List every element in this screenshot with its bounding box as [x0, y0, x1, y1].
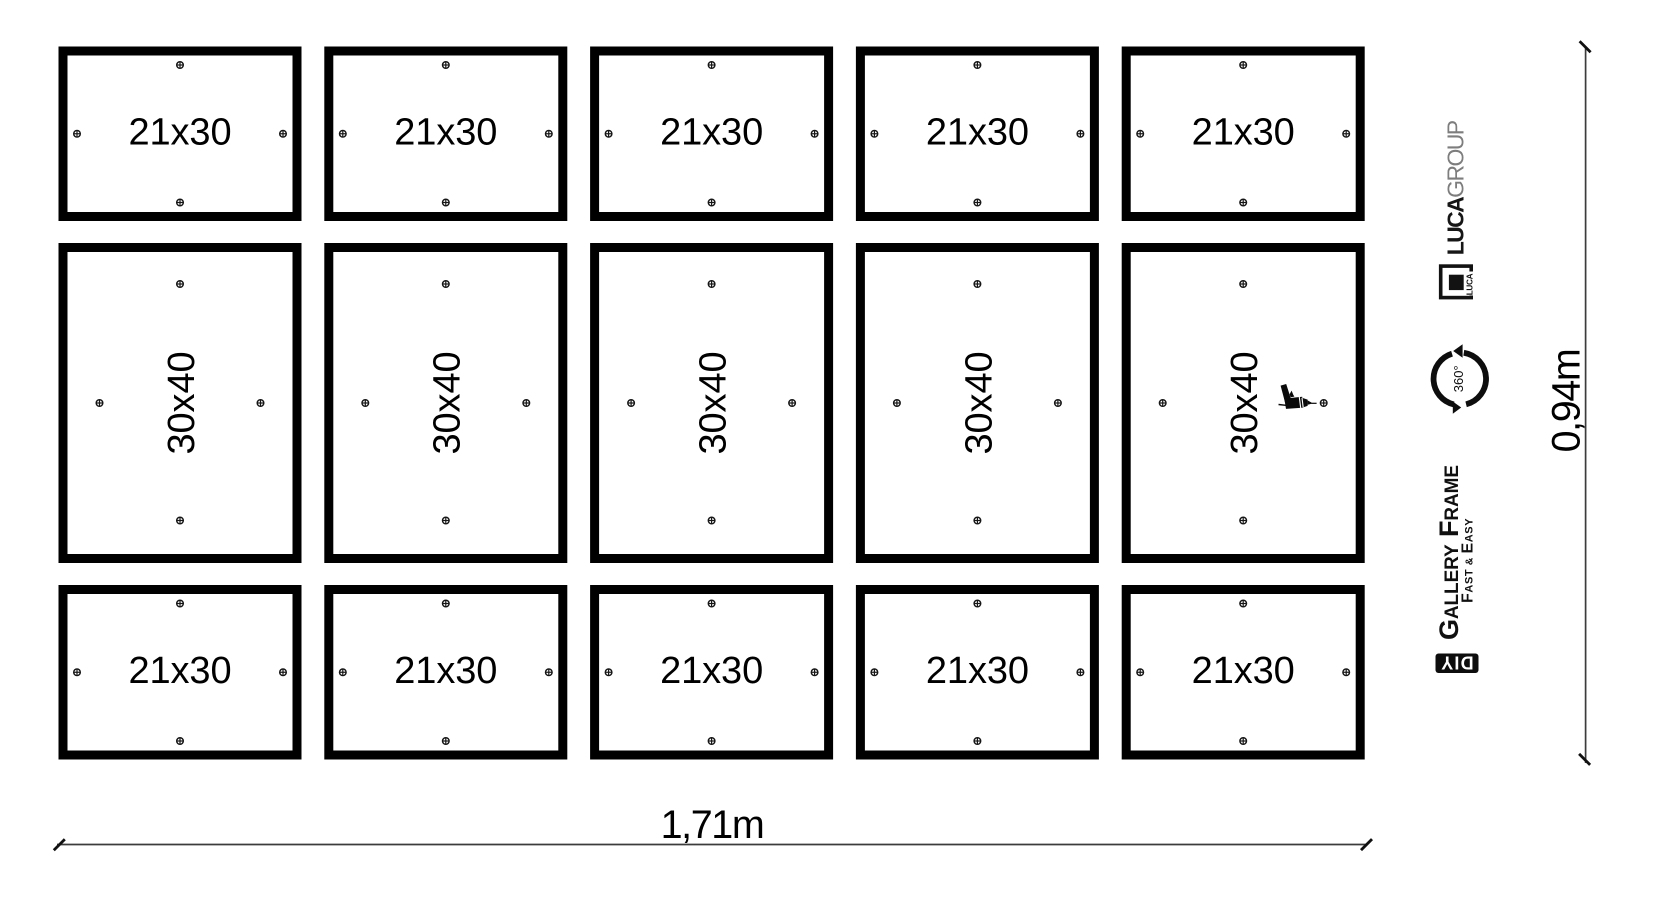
svg-text:21x30: 21x30	[1192, 650, 1295, 692]
svg-text:1,71m: 1,71m	[661, 803, 764, 847]
svg-text:LUCA: LUCA	[1465, 273, 1474, 295]
svg-text:30x40: 30x40	[161, 351, 203, 454]
svg-text:0,94m: 0,94m	[1545, 350, 1589, 453]
svg-text:21x30: 21x30	[926, 650, 1029, 692]
svg-text:30x40: 30x40	[427, 351, 469, 454]
svg-text:21x30: 21x30	[128, 112, 231, 154]
svg-text:LUCAGROUP: LUCAGROUP	[1443, 120, 1469, 255]
svg-text:21x30: 21x30	[394, 112, 497, 154]
svg-text:30x40: 30x40	[958, 351, 1000, 454]
svg-text:30x40: 30x40	[693, 351, 735, 454]
svg-text:21x30: 21x30	[660, 650, 763, 692]
svg-text:30x40: 30x40	[1224, 351, 1266, 454]
svg-text:21x30: 21x30	[394, 650, 497, 692]
svg-text:21x30: 21x30	[1192, 112, 1295, 154]
svg-text:21x30: 21x30	[926, 112, 1029, 154]
svg-text:360°: 360°	[1451, 365, 1466, 392]
svg-text:21x30: 21x30	[660, 112, 763, 154]
svg-text:DIY: DIY	[1440, 653, 1474, 673]
svg-text:21x30: 21x30	[128, 650, 231, 692]
